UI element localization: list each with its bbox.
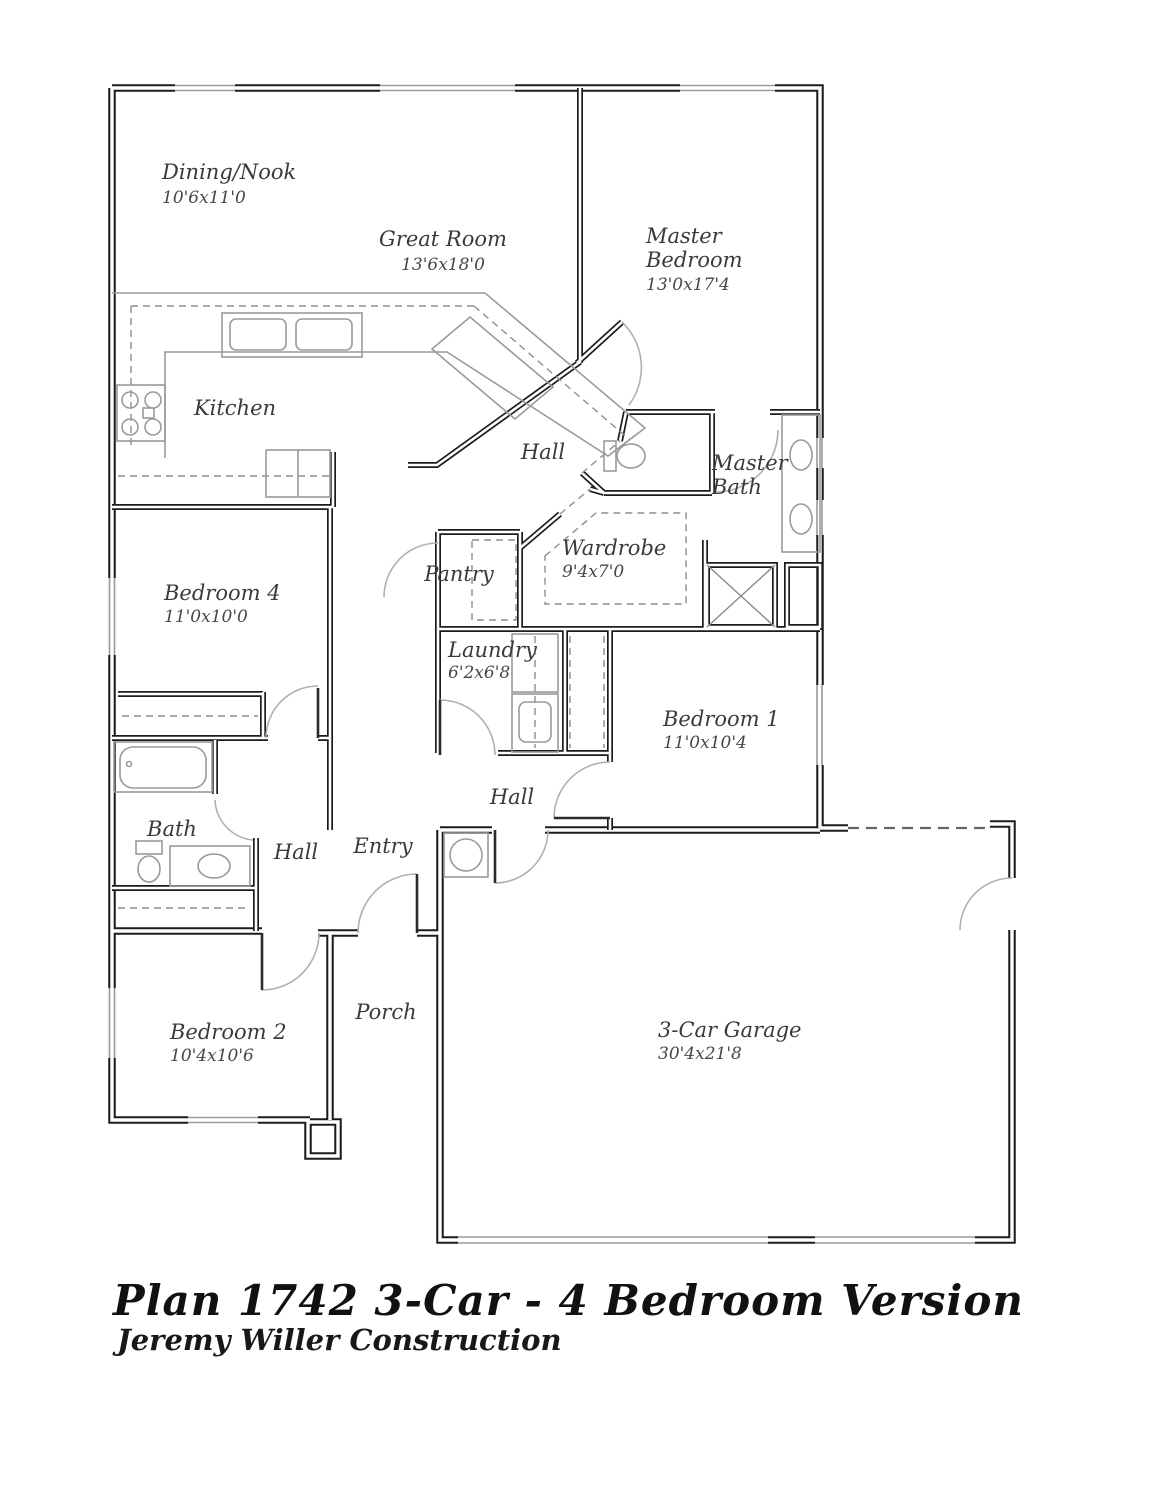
- hall-upper-name: Hall: [520, 440, 565, 464]
- room-label-garage: 3-Car Garage 30'4x21'8: [658, 1018, 801, 1064]
- master-bath-name-2: Bath: [711, 475, 762, 499]
- door-swings: [215, 322, 1012, 990]
- bedroom2-name: Bedroom 2: [169, 1020, 287, 1044]
- room-label-bedroom1: Bedroom 1 11'0x10'4: [662, 707, 780, 753]
- garage-name: 3-Car Garage: [658, 1018, 801, 1042]
- great-room-name: Great Room: [379, 227, 507, 251]
- laundry-name: Laundry: [447, 638, 538, 662]
- room-label-bath: Bath: [146, 817, 197, 841]
- room-label-master-bath: Master Bath: [711, 451, 790, 499]
- bedroom4-name: Bedroom 4: [163, 581, 281, 605]
- shower: [707, 565, 775, 627]
- porch-name: Porch: [354, 1000, 416, 1024]
- kitchen-double-sink: [222, 313, 362, 357]
- kitchen-name: Kitchen: [193, 396, 276, 420]
- room-label-laundry: Laundry 6'2x6'8: [447, 638, 538, 683]
- room-label-bedroom4: Bedroom 4 11'0x10'0: [163, 581, 281, 627]
- floor-plan-page: Dining/Nook 10'6x11'0 Great Room 13'6x18…: [0, 0, 1162, 1499]
- room-label-hall-left: Hall: [273, 840, 318, 864]
- room-label-kitchen: Kitchen: [193, 396, 276, 420]
- interior-walls: [112, 88, 820, 931]
- laundry-dims: 6'2x6'8: [448, 663, 510, 683]
- dining-dims: 10'6x11'0: [162, 188, 246, 208]
- floor-plan-drawing: Dining/Nook 10'6x11'0 Great Room 13'6x18…: [0, 0, 1162, 1499]
- hall-left-name: Hall: [273, 840, 318, 864]
- master-bedroom-dims: 13'0x17'4: [646, 275, 730, 295]
- wardrobe-dims: 9'4x7'0: [562, 562, 624, 582]
- refrigerator: [266, 450, 330, 497]
- master-bedroom-name-2: Bedroom: [645, 248, 743, 272]
- room-label-master-bedroom: Master Bedroom 13'0x17'4: [645, 224, 743, 295]
- room-label-great-room: Great Room 13'6x18'0: [379, 227, 507, 275]
- bedroom1-name: Bedroom 1: [662, 707, 780, 731]
- room-label-porch: Porch: [354, 1000, 416, 1024]
- room-label-pantry: Pantry: [423, 562, 495, 586]
- pantry-name: Pantry: [423, 562, 495, 586]
- stove: [117, 385, 165, 441]
- plan-subtitle: Jeremy Willer Construction: [112, 1323, 562, 1357]
- dining-name: Dining/Nook: [161, 160, 296, 184]
- plan-title: Plan 1742 3-Car - 4 Bedroom Version: [112, 1276, 1024, 1325]
- bathtub: [114, 742, 212, 792]
- room-label-hall-upper: Hall: [520, 440, 565, 464]
- entry-name: Entry: [352, 834, 413, 858]
- hall-center-name: Hall: [489, 785, 534, 809]
- toilet: [136, 841, 162, 882]
- dishwasher: [432, 317, 553, 419]
- water-heater: [444, 833, 488, 877]
- bedroom4-dims: 11'0x10'0: [164, 607, 248, 627]
- room-label-entry: Entry: [352, 834, 413, 858]
- master-bath-name-1: Master: [711, 451, 790, 475]
- room-label-hall-center: Hall: [489, 785, 534, 809]
- room-label-dining: Dining/Nook 10'6x11'0: [161, 160, 296, 208]
- bedroom2-dims: 10'4x10'6: [170, 1046, 254, 1066]
- wardrobe-name: Wardrobe: [562, 536, 666, 560]
- vanity-sink: [170, 846, 250, 886]
- master-bedroom-name-1: Master: [645, 224, 724, 248]
- title-block: Plan 1742 3-Car - 4 Bedroom Version Jere…: [112, 1276, 1024, 1357]
- room-label-bedroom2: Bedroom 2 10'4x10'6: [169, 1020, 287, 1066]
- master-toilet: [604, 441, 645, 471]
- bath-name: Bath: [146, 817, 197, 841]
- garage-door-panels: [458, 1237, 975, 1243]
- bedroom1-dims: 11'0x10'4: [663, 733, 747, 753]
- great-room-dims: 13'6x18'0: [401, 255, 485, 275]
- garage-dims: 30'4x21'8: [658, 1044, 742, 1064]
- room-label-wardrobe: Wardrobe 9'4x7'0: [562, 536, 666, 582]
